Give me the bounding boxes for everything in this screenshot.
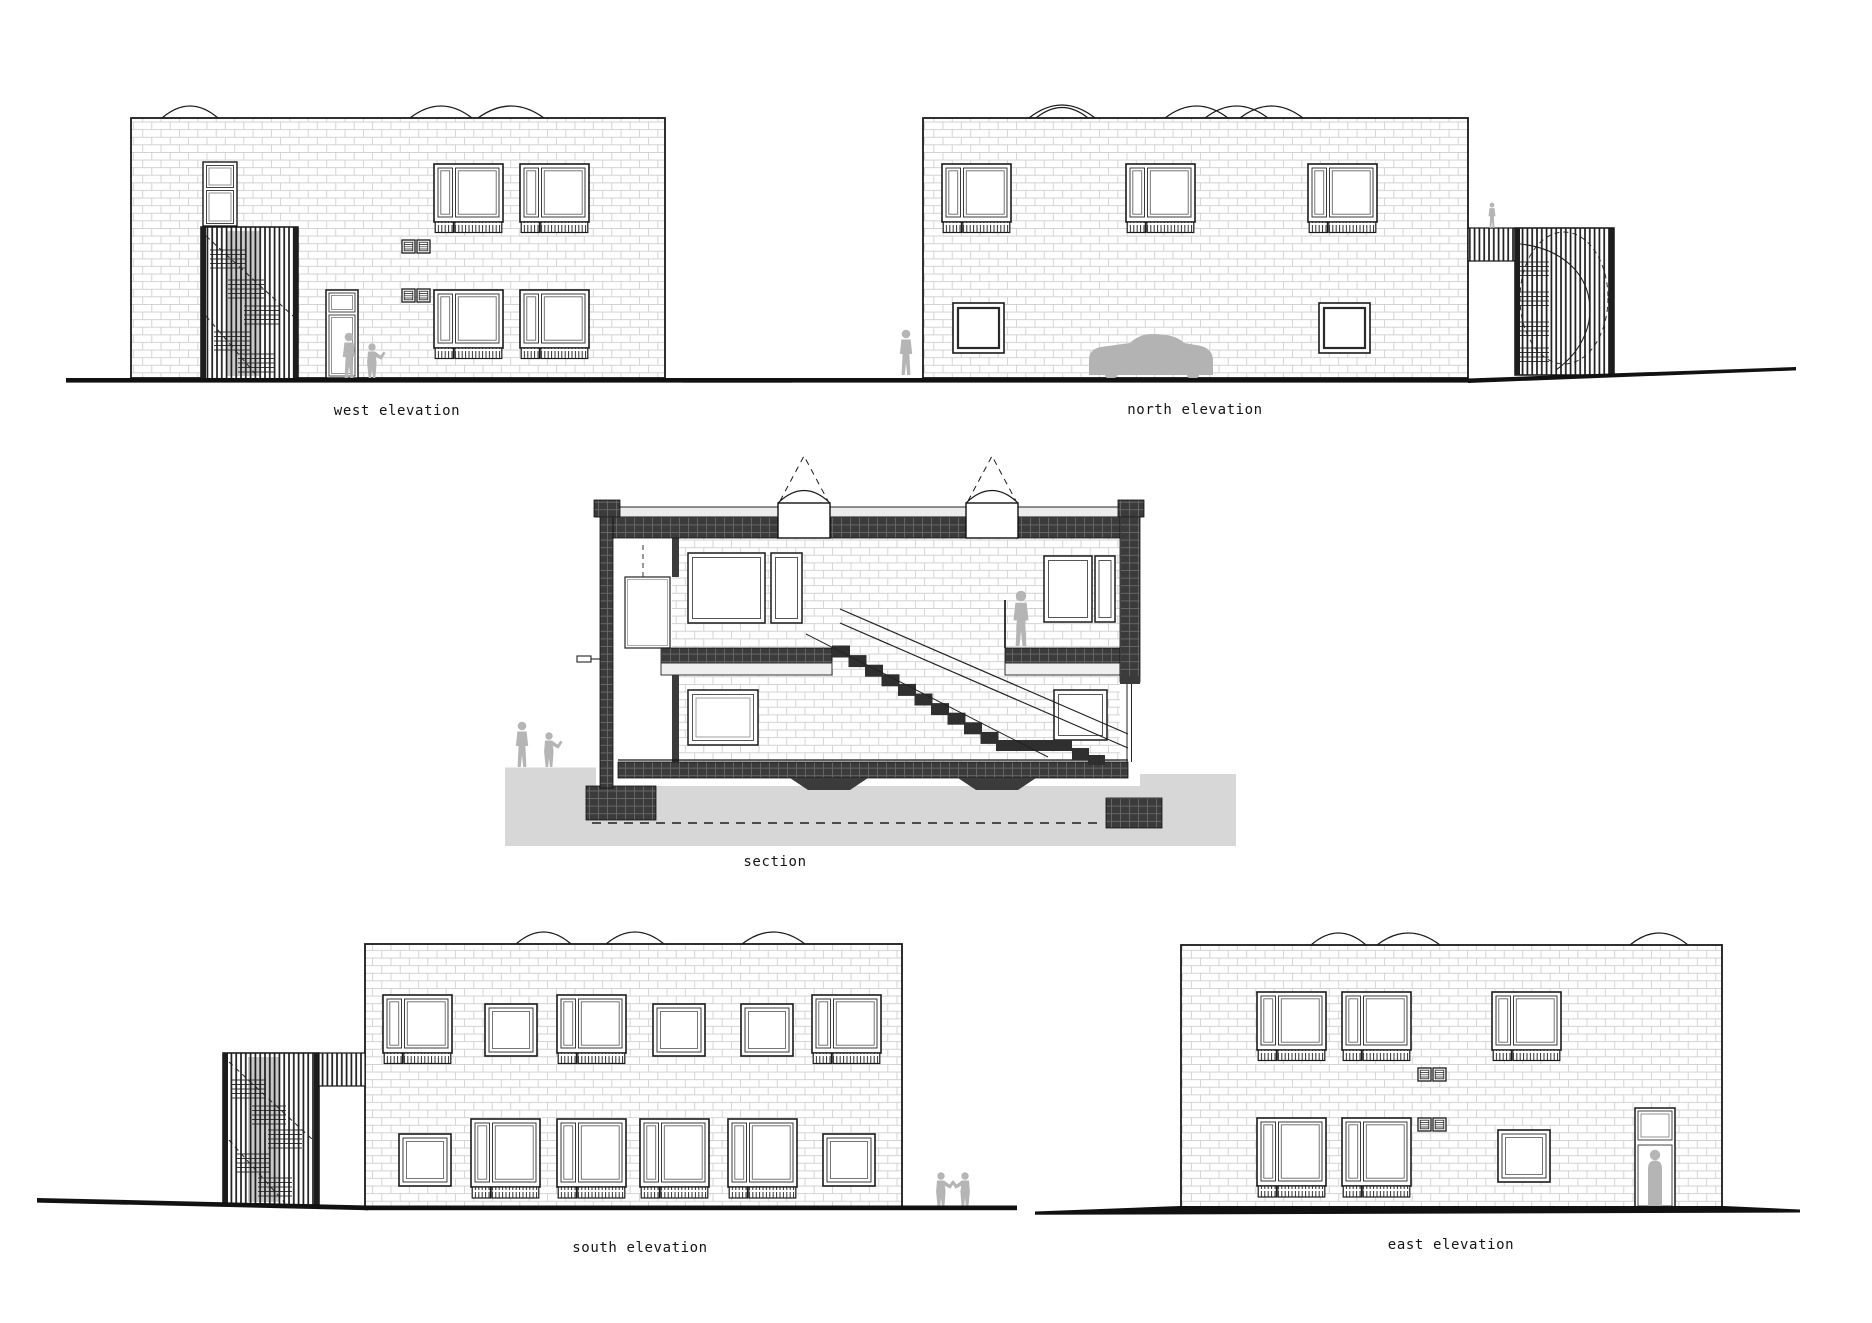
- window-double: [1257, 1118, 1326, 1197]
- ground-line: [365, 1206, 1017, 1211]
- window-square: [399, 1134, 451, 1186]
- cut-wall-right: [1120, 509, 1140, 762]
- window-double: [1257, 992, 1326, 1061]
- vent-grille: [402, 289, 415, 302]
- cut-wall-left: [600, 507, 613, 788]
- window-double: [557, 995, 626, 1064]
- east-elevation-label: east elevation: [1388, 1237, 1514, 1253]
- floor-slab-ground: [618, 760, 1128, 790]
- vent-grille: [417, 240, 430, 253]
- window-double: [1308, 164, 1377, 233]
- vent-grille: [1418, 1118, 1431, 1131]
- window-double: [640, 1119, 709, 1198]
- window-double: [1342, 1118, 1411, 1197]
- rooflight-dome: [778, 456, 830, 538]
- entrance-door: [326, 290, 358, 378]
- rooflight-dome: [966, 456, 1018, 538]
- person-silhouette: [1489, 203, 1496, 228]
- person-silhouette: [516, 722, 528, 767]
- east-elevation-drawing: east elevation: [1035, 933, 1800, 1253]
- south-elevation-drawing: south elevation: [37, 932, 1017, 1256]
- window-square: [953, 303, 1004, 353]
- window-double: [1492, 992, 1561, 1061]
- window-double: [557, 1119, 626, 1198]
- section-window-ground: [1054, 690, 1107, 740]
- shaft-wall: [672, 538, 679, 577]
- west-elevation-label: west elevation: [334, 403, 460, 419]
- foundation-block: [1106, 798, 1162, 828]
- ground-line: [1035, 1206, 1800, 1215]
- window-double: [520, 290, 589, 359]
- north-elevation-label: north elevation: [1127, 402, 1262, 418]
- roof-slab: [594, 500, 1144, 538]
- ground-line: [683, 378, 1468, 383]
- vent-grille: [1418, 1068, 1431, 1081]
- window-double: [942, 164, 1011, 233]
- window-double: [434, 164, 503, 233]
- plans-canvas: west elevation north elevati: [0, 0, 1872, 1323]
- vent-grille: [417, 289, 430, 302]
- window-square: [485, 1004, 537, 1056]
- rooflight-arcs: [516, 932, 805, 944]
- spiral-stair-enclosure: [1468, 228, 1614, 375]
- window-double: [812, 995, 881, 1064]
- child-silhouette: [952, 1172, 970, 1207]
- window-square: [1498, 1130, 1550, 1182]
- section-window-upper: [1044, 556, 1115, 622]
- window-double: [434, 290, 503, 359]
- child-silhouette: [936, 1172, 954, 1207]
- foundation-block: [586, 786, 656, 820]
- window-double: [520, 164, 589, 233]
- person-silhouette: [900, 330, 912, 375]
- window-double: [471, 1119, 540, 1198]
- section-label: section: [743, 854, 806, 870]
- window-square: [653, 1004, 705, 1056]
- section-window-upper: [688, 553, 802, 623]
- child-silhouette: [544, 732, 562, 767]
- window-square: [741, 1004, 793, 1056]
- west-elevation-drawing: west elevation: [66, 106, 792, 419]
- section-drawing: section: [505, 456, 1236, 870]
- vent-grille: [1433, 1118, 1446, 1131]
- wall-fixture: [577, 656, 600, 662]
- window-double: [1126, 164, 1195, 233]
- section-window-ground: [688, 690, 758, 745]
- rooflight-arcs: [1311, 933, 1688, 945]
- window-double: [1342, 992, 1411, 1061]
- window-double: [728, 1119, 797, 1198]
- spiral-stair-enclosure: [201, 227, 298, 379]
- vent-grille: [1433, 1068, 1446, 1081]
- entrance-door: [1635, 1108, 1675, 1207]
- drawing-sheet: west elevation north elevati: [0, 0, 1872, 1323]
- window-square: [823, 1134, 875, 1186]
- spiral-stair-enclosure: [223, 1053, 365, 1205]
- rooflight-arcs: [162, 106, 544, 118]
- window-square: [1319, 303, 1370, 353]
- south-elevation-label: south elevation: [572, 1240, 707, 1256]
- window-double: [383, 995, 452, 1064]
- vent-grille: [402, 240, 415, 253]
- north-elevation-drawing: north elevation: [683, 105, 1796, 418]
- rooflight-arcs: [1029, 105, 1303, 118]
- stair-tower-glazing: [203, 162, 237, 226]
